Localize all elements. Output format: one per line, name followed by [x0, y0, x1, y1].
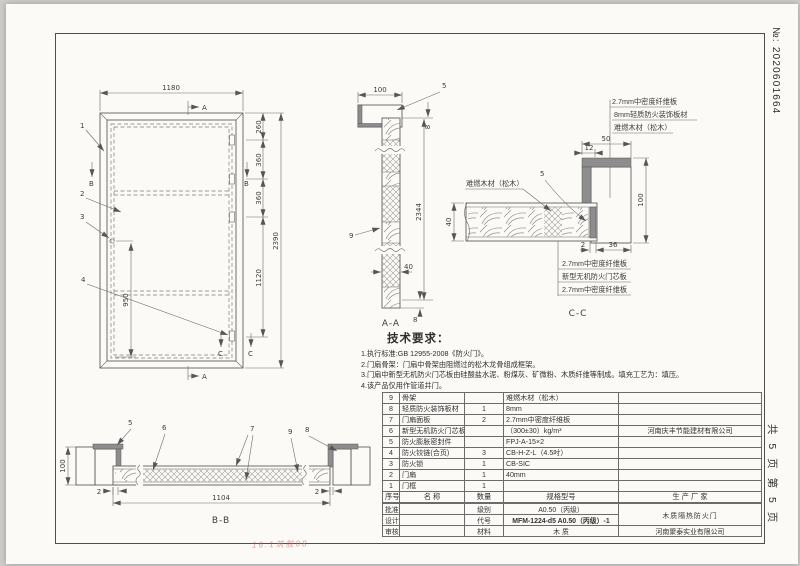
part-qty: 1	[465, 481, 504, 492]
part-spec: 2.7mm中密度纤维板	[504, 415, 619, 426]
elevation-leaders: 1 2 3 4	[80, 122, 228, 335]
dim-door-width: 1180	[162, 84, 180, 92]
dim-bb-100: 100	[59, 459, 67, 472]
code-value: MFM-1224-d5 A0.50（丙级）-1	[504, 515, 619, 526]
approve-signature	[400, 504, 465, 515]
section-markers: A A B B C C	[89, 101, 253, 381]
part-name: 门框	[400, 481, 465, 492]
leader-8-bb: 8	[305, 426, 309, 434]
dim-bb-1104: 1104	[212, 494, 230, 502]
table-row: 4 防火铰链(合页) 3 CB-H-Z-L（4.5吋）	[383, 448, 762, 459]
dim-cc-12: 12	[585, 144, 594, 152]
callout-facing-board: 8mm轻质防火装饰板材	[614, 110, 687, 119]
company-name: 河南聚泰实业有限公司	[619, 526, 762, 537]
tech-requirement-line: 3.门扇中新型无机防火门芯板由硅酸盐水泥、粉煤灰、矿微粉、木质纤维等制成。填充工…	[361, 370, 763, 381]
callout-pine-left: 难燃木材（松木）	[466, 179, 524, 188]
part-qty: 1	[465, 459, 504, 470]
part-no: 8	[383, 404, 400, 415]
leader-5-cc: 5	[540, 170, 544, 178]
part-no: 5	[383, 437, 400, 448]
part-qty	[465, 437, 504, 448]
review-signature	[400, 526, 465, 537]
handwritten-note: 16.1筑胶08	[252, 538, 309, 550]
part-name: 防火铰链(合页)	[400, 448, 465, 459]
header-no: 序号	[383, 492, 400, 503]
label-section-bb: B-B	[212, 516, 230, 526]
part-spec: 40mm	[504, 470, 619, 481]
code-label: 代号	[465, 515, 504, 526]
dim-lock-height: 950	[122, 293, 130, 306]
grade-value: A0.50（丙级）	[504, 504, 619, 515]
table-row: 6 新型无机防火门芯板 （300±30）kg/m³ 河南庆丰节能建材有限公司	[383, 426, 762, 437]
marker-c-2: C	[248, 350, 253, 358]
part-name: 骨架	[400, 393, 465, 404]
title-block-row: 批准 级别 A0.50（丙级） 木质隔热防火门	[383, 504, 762, 515]
callout-core-board: 新型无机防火门芯板	[562, 272, 627, 281]
dim-seg4: 1120	[255, 269, 263, 287]
part-mfr	[619, 415, 762, 426]
part-name: 防火锁	[400, 459, 465, 470]
title-block: 批准 级别 A0.50（丙级） 木质隔热防火门 设计 代号 MFM-1224-d…	[382, 503, 762, 537]
dim-cc-100: 100	[637, 193, 645, 206]
page-count: 共 5 页 第 5 页	[765, 424, 780, 525]
marker-b-left: B	[89, 180, 94, 188]
part-no: 7	[383, 415, 400, 426]
callout-fiberboard-1: 2.7mm中密度纤维板	[562, 259, 627, 268]
table-row: 9 骨架 难燃木材（松木）	[383, 393, 762, 404]
leader-2: 2	[80, 190, 84, 198]
product-name: 木质隔热防火门	[619, 504, 762, 526]
leader-4: 4	[81, 276, 86, 284]
document-number: №: 2020601664	[770, 27, 781, 115]
section-bb: 100 2 2 1104 5 6 7 9 8 B-B	[59, 419, 370, 526]
tech-requirement-line: 2.门扇骨架：门扇中骨架由阻燃过的松木龙骨组成框架。	[361, 360, 763, 371]
leader-9-bb: 9	[288, 428, 292, 436]
callout-fiberboard-top: 2.7mm中密度纤维板	[612, 97, 677, 106]
dim-aa-thickness: 40	[404, 263, 413, 271]
table-row: 8 轻质防火装饰板材 1 8mm	[383, 404, 762, 415]
part-mfr	[619, 481, 762, 492]
part-no: 6	[383, 426, 400, 437]
part-mfr	[619, 393, 762, 404]
tech-requirements-title: 技术要求：	[387, 330, 763, 346]
section-aa: 100 8 2344 8 40 9 5 A-A	[349, 82, 446, 329]
marker-c-1: C	[218, 350, 223, 358]
part-spec	[504, 481, 619, 492]
table-header-row: 序号 名 称 数量 规格型号 生 产 厂 家	[383, 492, 762, 503]
label-section-cc: C-C	[569, 309, 588, 319]
part-qty: 3	[465, 448, 504, 459]
callout-pine-top: 难燃木材（松木）	[614, 123, 672, 132]
label-section-aa: A-A	[382, 319, 400, 329]
dim-aa-frame-width: 100	[373, 86, 386, 94]
part-spec: FPJ-A-15×2	[504, 437, 619, 448]
scanned-drawing-sheet: .ln{stroke:#5f5f5f;stroke-width:.9;fill:…	[0, 0, 800, 566]
part-mfr	[619, 437, 762, 448]
marker-a-bottom: A	[202, 373, 207, 381]
part-qty: 2	[465, 415, 504, 426]
part-qty	[465, 393, 504, 404]
part-mfr	[619, 404, 762, 415]
dim-cc-2: 2	[581, 241, 585, 249]
dim-seg3: 360	[255, 191, 263, 204]
part-name: 新型无机防火门芯板	[400, 426, 465, 437]
dim-door-height: 2390	[272, 232, 280, 250]
table-row: 2 门扇 1 40mm	[383, 470, 762, 481]
leader-3: 3	[80, 213, 84, 221]
part-spec: （300±30）kg/m³	[504, 426, 619, 437]
dim-cc-36: 36	[609, 241, 618, 249]
part-name: 门扇	[400, 470, 465, 481]
part-no: 9	[383, 393, 400, 404]
part-qty: 1	[465, 470, 504, 481]
dim-seg1: 260	[255, 120, 263, 133]
callout-fiberboard-2: 2.7mm中密度纤维板	[562, 285, 627, 294]
door-elevation: 1180 260 360 360 1120 2390 950 1 2 3 4 A	[80, 84, 284, 381]
table-row: 1 门框 1	[383, 481, 762, 492]
marker-b-right: B	[244, 180, 249, 188]
section-cc: 2.7mm中密度纤维板 8mm轻质防火装饰板材 难燃木材（松木） 50 12 1…	[445, 97, 697, 319]
header-qty: 数量	[465, 492, 504, 503]
leader-9-aa: 9	[349, 232, 353, 240]
parts-table: 9 骨架 难燃木材（松木） 8 轻质防火装饰板材 1 8mm 7 门扇面板 2 …	[382, 392, 762, 503]
leader-6-bb: 6	[162, 424, 167, 432]
material-label: 材料	[465, 526, 504, 537]
part-qty	[465, 426, 504, 437]
grade-label: 级别	[465, 504, 504, 515]
leader-5-aa: 5	[442, 82, 446, 90]
leader-1: 1	[80, 122, 84, 130]
tech-requirement-line: 1.执行标准:GB 12955-2008《防火门》。	[361, 349, 763, 360]
part-name: 轻质防火装饰板材	[400, 404, 465, 415]
part-spec: CB-SIC	[504, 459, 619, 470]
leader-7-bb: 7	[250, 425, 254, 433]
title-block-row: 审核 材料 木 质 河南聚泰实业有限公司	[383, 526, 762, 537]
dim-bb-gap-right: 2	[315, 488, 319, 496]
dim-cc-50: 50	[602, 135, 611, 143]
design-signature	[400, 515, 465, 526]
part-qty: 1	[465, 404, 504, 415]
dim-seg2: 360	[255, 153, 263, 166]
part-spec: 8mm	[504, 404, 619, 415]
technical-requirements: 技术要求： 1.执行标准:GB 12955-2008《防火门》。 2.门扇骨架：…	[361, 330, 763, 391]
tech-requirement-line: 4.该产品仅用作管道井门。	[361, 381, 763, 392]
dim-aa-gap-bottom: 8	[413, 316, 417, 324]
review-label: 审核	[383, 526, 400, 537]
part-no: 1	[383, 481, 400, 492]
part-spec: CB-H-Z-L（4.5吋）	[504, 448, 619, 459]
design-label: 设计	[383, 515, 400, 526]
dim-bb-gap-left: 2	[97, 488, 101, 496]
material-value: 木 质	[504, 526, 619, 537]
part-name: 防火膨胀密封件	[400, 437, 465, 448]
table-row: 7 门扇面板 2 2.7mm中密度纤维板	[383, 415, 762, 426]
lock-mark	[110, 239, 114, 243]
header-name: 名 称	[400, 492, 465, 503]
table-row: 3 防火锁 1 CB-SIC	[383, 459, 762, 470]
part-no: 3	[383, 459, 400, 470]
header-spec: 规格型号	[504, 492, 619, 503]
part-no: 4	[383, 448, 400, 459]
part-mfr	[619, 448, 762, 459]
header-mfr: 生 产 厂 家	[619, 492, 762, 503]
part-mfr: 河南庆丰节能建材有限公司	[619, 426, 762, 437]
table-row: 5 防火膨胀密封件 FPJ-A-15×2	[383, 437, 762, 448]
part-no: 2	[383, 470, 400, 481]
part-spec: 难燃木材（松木）	[504, 393, 619, 404]
approve-label: 批准	[383, 504, 400, 515]
tables-area: 9 骨架 难燃木材（松木） 8 轻质防火装饰板材 1 8mm 7 门扇面板 2 …	[382, 392, 761, 537]
part-mfr	[619, 459, 762, 470]
marker-a-top: A	[202, 104, 207, 112]
dim-aa-leaf-height: 2344	[415, 203, 423, 221]
dim-cc-40: 40	[445, 218, 453, 227]
leader-5-bb: 5	[128, 419, 132, 427]
part-mfr	[619, 470, 762, 481]
dim-aa-gap-top: 8	[424, 125, 432, 129]
part-name: 门扇面板	[400, 415, 465, 426]
